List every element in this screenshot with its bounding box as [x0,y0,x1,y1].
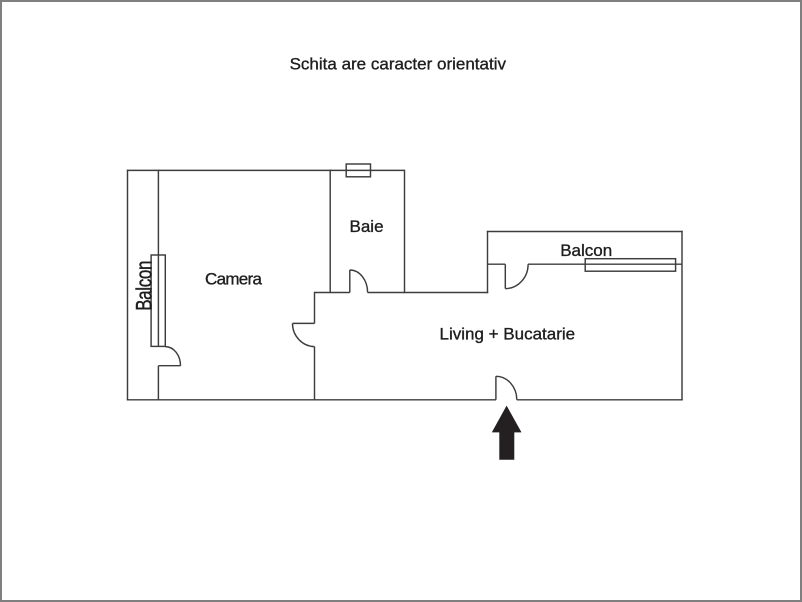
svg-text:Baie: Baie [350,217,384,236]
svg-text:Balcon: Balcon [560,241,612,260]
svg-text:Balcon: Balcon [132,261,157,311]
svg-text:Camera: Camera [205,270,263,289]
svg-text:Living + Bucatarie: Living + Bucatarie [440,325,576,344]
svg-text:Schita are caracter orientativ: Schita are caracter orientativ [290,55,507,74]
